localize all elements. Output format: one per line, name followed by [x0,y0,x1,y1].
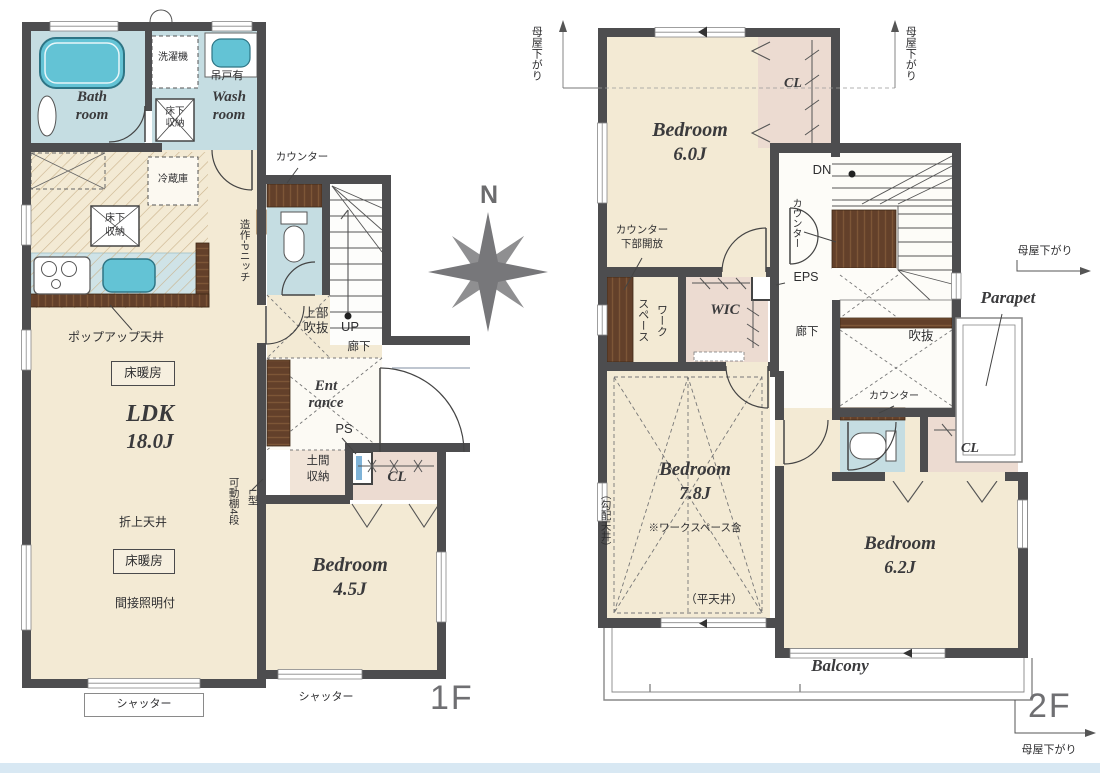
f2-stair-counter [832,210,896,300]
moya-right-label: 母屋下がり [998,245,1092,258]
bedroom-45-label: Bedroom4.5J [288,553,412,602]
bedroom-78-note: ※ワークスペース含 [630,522,760,535]
underfloor-storage-kitchen-label: 床下収納 [92,212,138,239]
bathroom-label: Bathroom [52,88,132,124]
counter-open-label: カウンター下部開放 [598,224,686,251]
eps-label: EPS [786,270,826,285]
floorplan-page: 洗濯機 吊戸有 Bathroom Washroom 床下収納 冷蔵庫 床下収納 … [0,0,1100,773]
l-type-label: L型 [246,477,259,517]
entrance-label: Entrance [291,378,361,413]
floor-heating-living-label: 床暖房 [113,549,175,574]
doma-storage-label: 土間収納 [294,454,342,485]
hallway-label-2f: 廊下 [788,326,826,340]
bedroom-60-label: Bedroom6.0J [622,118,758,167]
moya-top-left-label: 母屋下がり [529,8,542,98]
raised-ceiling-label: 折上天井 [110,515,176,529]
fridge-label: 冷蔵庫 [149,174,197,186]
compass-north-label: N [476,180,502,210]
floor2-label: 2F [1028,686,1072,727]
parapet-label: Parapet [956,288,1060,308]
closet1-label-2f: CL [775,76,811,93]
wic-label: WIC [694,301,756,319]
hanging-cabinet-label: 吊戸有 [198,70,256,83]
ldk-label: LDK18.0J [98,401,202,453]
bedroom-62-label: Bedroom6.2J [836,532,964,578]
shutter-left-label: シャッター [84,693,204,717]
footer-strip [0,763,1100,773]
niche-label: 造作-Pニッチ [238,196,251,304]
bedroom-78-label: Bedroom7.8J [638,458,752,504]
closet-label-1f: CL [377,468,417,486]
moya-top-right-label: 母屋下がり [903,8,916,98]
counter-toilet-label: カウンター [858,391,930,403]
moya-bottom-label: 母屋下がり [1002,744,1096,757]
closet2-label-2f: CL [950,441,990,458]
floor1-label: 1F [430,678,474,719]
sloped-ceiling-label: （勾配天井） [599,466,612,574]
compass-icon [428,212,548,332]
dn-label: DN [804,162,840,178]
balcony-label: Balcony [788,656,892,676]
washroom-label: Washroom [196,88,262,124]
popup-ceiling-label: ポップアップ天井 [46,330,186,344]
ps-label: PS [329,421,359,437]
shutter-right-label: シャッター [286,691,366,704]
flat-ceiling-label: （平天井） [672,594,756,608]
counter-label-1f: カウンター [266,151,338,164]
void-label: 吹抜 [898,329,944,344]
hallway-label-1f: 廊下 [341,341,377,355]
up-label: UP [336,319,364,335]
movable-shelf-label: 可動棚4段 [227,458,240,544]
workspace-label: ワーク スペース [633,280,670,360]
counter-stairs-label: カウンター [789,190,801,256]
washer-label: 洗濯機 [150,52,196,64]
floor-heating-kitchen-label: 床暖房 [111,361,175,386]
indirect-lighting-label: 間接照明付 [105,596,185,610]
underfloor-storage-wash-label: 床下収納 [157,106,193,131]
